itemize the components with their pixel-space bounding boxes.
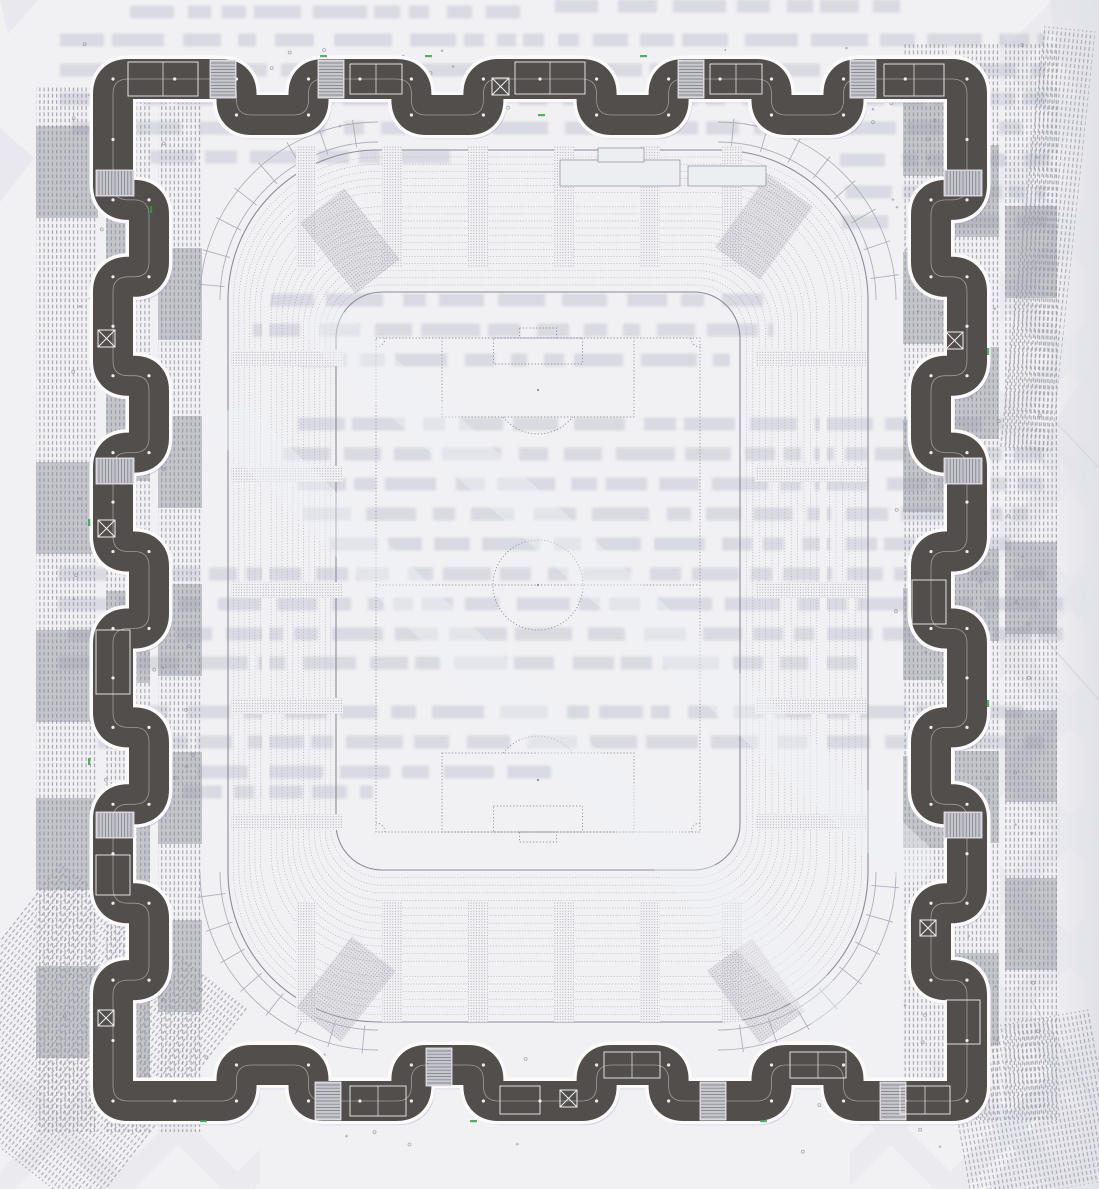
vomitory-aisle xyxy=(231,582,343,598)
stair-flight xyxy=(944,170,982,196)
vomitory-aisle xyxy=(231,698,343,714)
ramp-shaded-block xyxy=(36,630,98,722)
vomitory-aisle xyxy=(640,902,660,1022)
green-scan-tick xyxy=(320,55,327,57)
vomitory-aisle xyxy=(382,902,402,1022)
green-scan-tick xyxy=(987,700,989,707)
green-scan-tick xyxy=(538,114,545,116)
ramp-shaded-block xyxy=(36,126,98,218)
stadium-floor-plan xyxy=(0,0,1099,1189)
stair-flight xyxy=(700,1082,726,1120)
dust-speck xyxy=(725,49,727,51)
vomitory-aisle xyxy=(755,582,867,598)
ramp-shaded-block xyxy=(1005,878,1057,970)
vomitory-aisle xyxy=(755,466,867,482)
stair-flight xyxy=(315,1082,341,1120)
camera-platform xyxy=(598,148,644,162)
green-scan-tick xyxy=(760,1120,767,1122)
camera-platform xyxy=(688,166,766,186)
vomitory-aisle xyxy=(296,146,316,268)
green-scan-tick xyxy=(425,55,432,57)
stair-flight xyxy=(678,60,704,98)
green-scan-tick xyxy=(150,206,152,213)
camera-platform xyxy=(560,160,680,186)
vomitory-aisle xyxy=(468,902,488,1022)
green-scan-tick xyxy=(470,1120,477,1122)
stair-flight xyxy=(850,60,876,98)
stair-flight xyxy=(210,60,236,98)
stair-flight xyxy=(96,170,134,196)
stair-flight xyxy=(426,1048,452,1086)
vomitory-aisle xyxy=(554,902,574,1022)
green-scan-tick xyxy=(200,1120,207,1122)
stair-flight xyxy=(318,60,344,98)
ramp-shaded-block xyxy=(1005,542,1057,634)
scanned-book-page xyxy=(0,0,1099,1189)
green-scan-tick xyxy=(88,519,90,526)
dust-speck xyxy=(67,889,69,891)
stair-flight xyxy=(944,812,982,838)
vomitory-aisle xyxy=(231,814,343,830)
stair-flight xyxy=(96,812,134,838)
vomitory-aisle xyxy=(468,146,488,268)
dust-speck xyxy=(427,1063,429,1065)
stair-flight xyxy=(944,458,982,484)
green-scan-tick xyxy=(88,758,90,765)
green-scan-tick xyxy=(987,348,989,355)
ramp-shaded-block xyxy=(1005,710,1057,802)
stair-flight xyxy=(96,458,134,484)
vomitory-aisle xyxy=(755,350,867,366)
ramp-shaded-block xyxy=(36,462,98,554)
green-scan-tick xyxy=(640,55,647,57)
